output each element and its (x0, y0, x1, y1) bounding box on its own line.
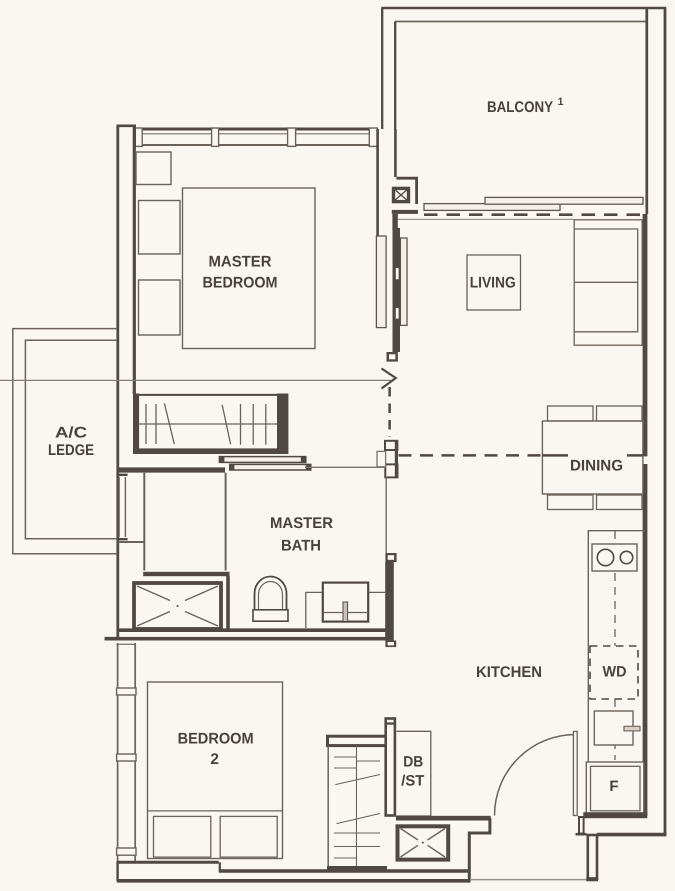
svg-text:DB: DB (403, 754, 423, 771)
svg-text:2: 2 (210, 751, 219, 768)
svg-text:LIVING: LIVING (470, 275, 516, 292)
svg-text:BEDROOM: BEDROOM (178, 731, 254, 748)
svg-text:A/C: A/C (55, 425, 87, 442)
svg-text:BATH: BATH (281, 538, 321, 555)
svg-text:1: 1 (558, 96, 564, 108)
svg-text:WD: WD (603, 664, 627, 681)
svg-text:/ST: /ST (401, 773, 424, 790)
svg-text:MASTER: MASTER (209, 254, 272, 271)
svg-text:BALCONY: BALCONY (487, 99, 554, 116)
svg-text:DINING: DINING (570, 458, 623, 475)
svg-text:MASTER: MASTER (270, 515, 333, 532)
svg-text:KITCHEN: KITCHEN (476, 664, 542, 681)
svg-text:LEDGE: LEDGE (48, 442, 94, 459)
svg-text:BEDROOM: BEDROOM (203, 275, 278, 292)
svg-text:F: F (609, 778, 618, 795)
